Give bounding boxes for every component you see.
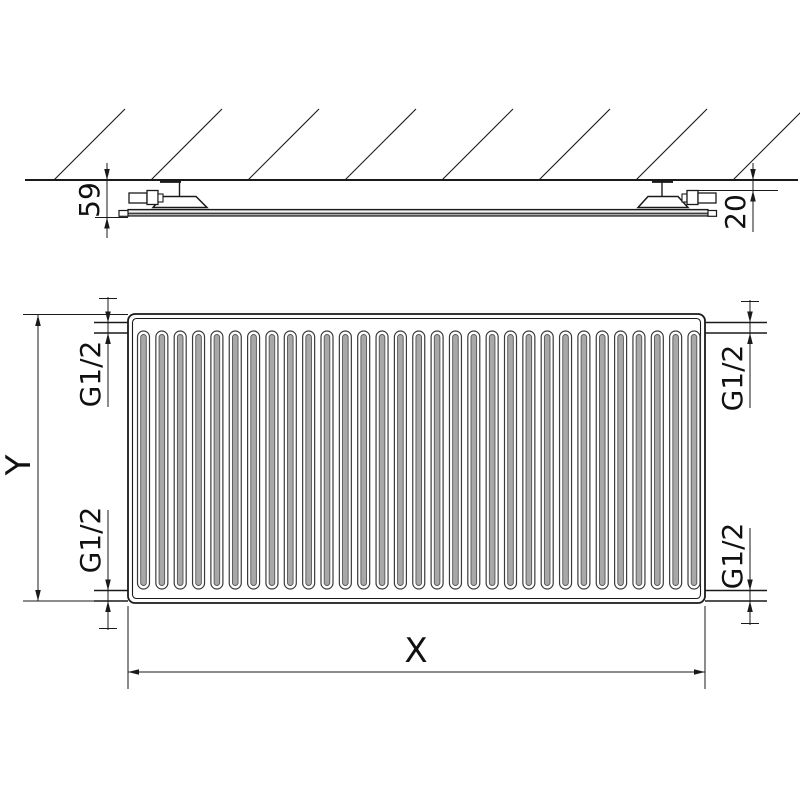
connection-size-label: G1/2 xyxy=(716,345,749,412)
radiator-panel-profile xyxy=(119,210,717,217)
channel-core xyxy=(141,335,147,586)
connection-size-label: G1/2 xyxy=(716,523,749,590)
channel-core xyxy=(434,335,440,586)
panel-strip xyxy=(128,210,708,217)
channel-core xyxy=(453,335,459,586)
channel-core xyxy=(379,335,385,586)
channel-core xyxy=(471,335,477,586)
channel-core xyxy=(581,335,587,586)
channel-core xyxy=(563,335,569,586)
channel-core xyxy=(673,335,679,586)
channel-core xyxy=(361,335,367,586)
channel-core xyxy=(288,335,294,586)
channel-core xyxy=(306,335,312,586)
channel-core xyxy=(398,335,404,586)
corrugation-channels xyxy=(138,331,701,589)
connection-size-label: G1/2 xyxy=(74,507,107,574)
channel-core xyxy=(177,335,183,586)
bracket-bolt-link xyxy=(158,194,163,202)
connection-size-label: G1/2 xyxy=(74,341,107,408)
channel-core xyxy=(159,335,165,586)
channel-core xyxy=(618,335,624,586)
technical-drawing-radiator: 59 20 Y xyxy=(0,0,800,800)
channel-core xyxy=(636,335,642,586)
panel-end-cap-right xyxy=(708,211,717,217)
panel-end-cap-left xyxy=(119,211,128,217)
channel-core xyxy=(343,335,349,586)
height-dimension-label: Y xyxy=(0,454,39,476)
bracket-bolt-nut xyxy=(687,191,698,205)
bracket-bolt-link xyxy=(682,194,687,202)
channel-core xyxy=(416,335,422,586)
bracket-bolt-body xyxy=(129,193,147,203)
width-dimension-label: X xyxy=(404,631,427,671)
bracket-bolt-nut xyxy=(147,191,158,205)
channel-core xyxy=(544,335,550,586)
channel-core xyxy=(251,335,257,586)
channel-core xyxy=(269,335,275,586)
channel-core xyxy=(489,335,495,586)
channel-core xyxy=(691,335,697,586)
channel-core xyxy=(214,335,220,586)
drawing-canvas: 59 20 Y xyxy=(0,0,800,800)
channel-core xyxy=(324,335,330,586)
channel-core xyxy=(508,335,514,586)
bracket-bolt-body xyxy=(698,193,716,203)
bracket-clip xyxy=(638,197,688,208)
channel-core xyxy=(232,335,238,586)
depth-dimension-label: 59 xyxy=(73,182,106,218)
channel-core xyxy=(196,335,202,586)
channel-core xyxy=(526,335,532,586)
channel-core xyxy=(655,335,661,586)
channel-core xyxy=(599,335,605,586)
wall-gap-dimension-label: 20 xyxy=(719,194,752,230)
